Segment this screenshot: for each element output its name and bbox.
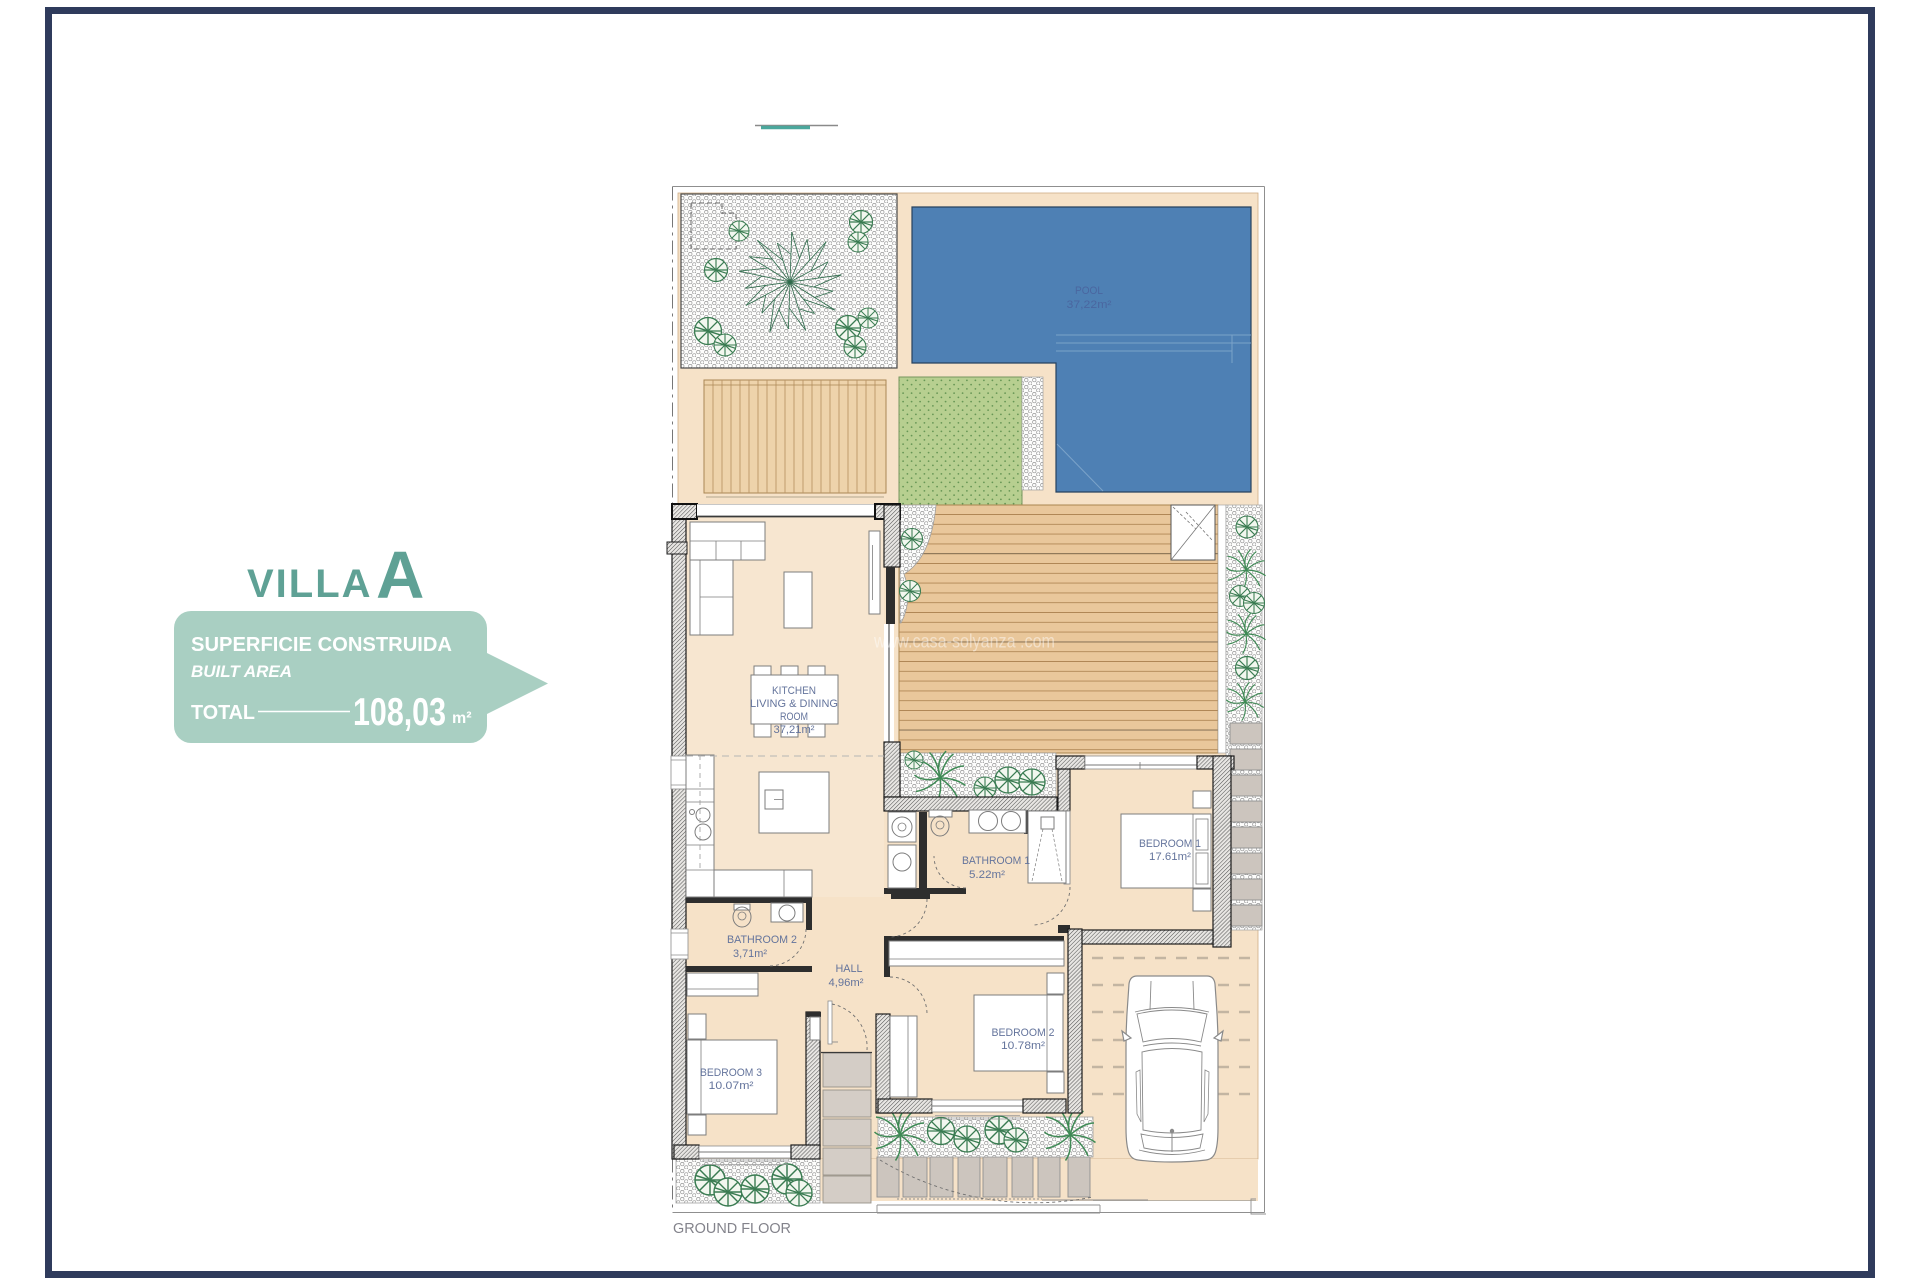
svg-text:BATHROOM 1: BATHROOM 1 (962, 855, 1030, 867)
svg-text:BATHROOM 2: BATHROOM 2 (727, 934, 797, 946)
svg-text:4,96m²: 4,96m² (829, 977, 864, 989)
svg-text:17.61m²: 17.61m² (1149, 851, 1191, 863)
svg-text:TOTAL: TOTAL (191, 701, 255, 724)
svg-text:BEDROOM 1: BEDROOM 1 (1139, 838, 1201, 850)
svg-text:10.78m²: 10.78m² (1001, 1040, 1045, 1052)
svg-text:3,71m²: 3,71m² (733, 948, 767, 960)
svg-text:37,21m²: 37,21m² (774, 724, 815, 736)
svg-text:GROUND FLOOR: GROUND FLOOR (673, 1220, 791, 1237)
svg-text:108,03: 108,03 (353, 691, 446, 734)
svg-text:BUILT AREA: BUILT AREA (191, 662, 292, 681)
svg-text:m²: m² (452, 710, 472, 727)
svg-text:5.22m²: 5.22m² (969, 869, 1005, 881)
svg-text:www.casa-solyanza .com: www.casa-solyanza .com (873, 631, 1055, 653)
svg-text:KITCHEN: KITCHEN (772, 685, 816, 697)
svg-text:SUPERFICIE CONSTRUIDA: SUPERFICIE CONSTRUIDA (191, 633, 452, 656)
svg-text:HALL: HALL (836, 963, 863, 975)
svg-text:A: A (376, 538, 424, 613)
svg-text:POOL: POOL (1075, 285, 1103, 297)
svg-text:BEDROOM 3: BEDROOM 3 (700, 1067, 762, 1079)
svg-text:VILLA: VILLA (247, 562, 373, 606)
svg-text:LIVING & DINING: LIVING & DINING (750, 698, 838, 710)
svg-text:10.07m²: 10.07m² (709, 1080, 754, 1092)
svg-text:ROOM: ROOM (780, 711, 808, 723)
svg-text:37,22m²: 37,22m² (1067, 299, 1112, 311)
svg-text:BEDROOM 2: BEDROOM 2 (992, 1027, 1055, 1039)
